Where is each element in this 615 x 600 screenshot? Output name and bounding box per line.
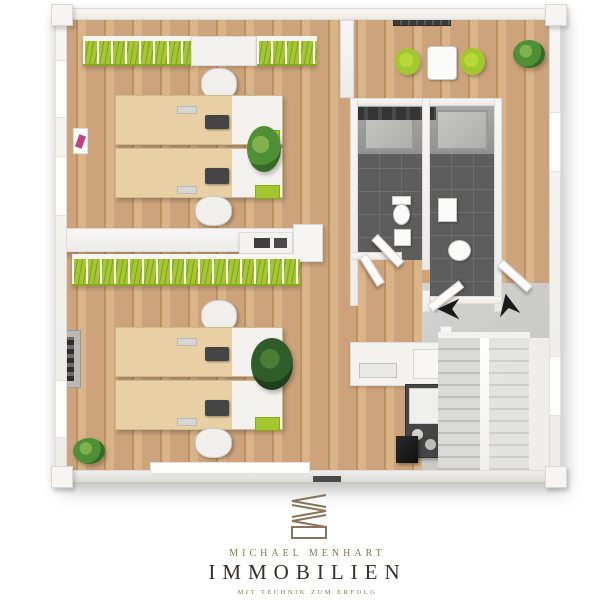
stair-side-wall (529, 338, 549, 470)
green-chair (395, 48, 420, 75)
printer-cabinet (239, 232, 293, 254)
bathroom-left-tile-floor (358, 154, 422, 260)
drawer-pedestal-green (255, 417, 280, 431)
potted-plant (247, 126, 281, 172)
cooktop-burner (425, 439, 436, 450)
kitchen-sink (359, 363, 397, 378)
window (55, 60, 67, 118)
potted-plant (513, 40, 545, 68)
outer-wall-top (55, 8, 561, 20)
toilet (448, 240, 471, 261)
window (549, 112, 561, 172)
monitor (205, 168, 229, 184)
corner-pillar (545, 466, 567, 488)
threshold-dark (313, 476, 341, 482)
keyboard (177, 186, 197, 194)
wall-art-pink (75, 134, 86, 149)
appliance-front (409, 388, 439, 424)
window (55, 380, 67, 438)
wall (350, 98, 358, 306)
corner-pillar (51, 466, 73, 488)
stair-flight-right (489, 338, 529, 470)
keyboard (177, 418, 197, 426)
stair-void (480, 338, 489, 470)
potted-plant-dark (251, 338, 293, 390)
window (55, 156, 67, 216)
brand-block: MICHAEL MENHART IMMOBILIEN MIT TECHNIK Z… (0, 488, 615, 596)
monitor (205, 400, 229, 416)
drawer-pedestal-green (255, 185, 280, 199)
brand-name: MICHAEL MENHART (229, 548, 386, 559)
keyboard (177, 106, 197, 114)
corner-pillar (545, 4, 567, 26)
office-device (274, 238, 287, 248)
bathroom-right-tile-floor (430, 154, 494, 304)
window (549, 356, 561, 416)
bistro-table (427, 46, 457, 80)
toilet (393, 204, 410, 225)
stair-direction-arrow-icon (493, 290, 524, 321)
shelf-unit-green-top-left (83, 36, 191, 66)
monitor (205, 115, 229, 129)
sink (438, 198, 457, 222)
printer (254, 238, 270, 248)
corner-pillar (51, 4, 73, 26)
window-sill-bottom (150, 462, 310, 474)
brand-tagline: MIT TECHNIK ZUM ERFOLG (238, 589, 378, 596)
cabinet-white-top (191, 36, 257, 66)
brand-division: IMMOBILIEN (208, 560, 406, 585)
trash-bin (396, 436, 418, 463)
wall (494, 98, 502, 312)
green-chair (460, 48, 485, 75)
wall-art-frame (73, 128, 88, 154)
wall-stub-top (340, 20, 354, 98)
floorplan-rendering: MICHAEL MENHART IMMOBILIEN MIT TECHNIK Z… (0, 0, 615, 600)
brand-logo-icon (276, 488, 340, 544)
office-chair (195, 428, 232, 458)
wall (422, 98, 430, 270)
monitor (205, 347, 229, 361)
wall (422, 290, 430, 312)
floor-plan (55, 8, 561, 482)
keyboard (177, 338, 197, 346)
stair-flight-left (438, 338, 480, 470)
potted-plant (73, 438, 105, 464)
office-chair (195, 196, 232, 226)
kitchen-counter (350, 342, 450, 386)
shelf-unit-green-middle (72, 254, 300, 286)
sink (394, 229, 411, 246)
bathroom-mirror (436, 110, 488, 150)
shelf-unit-green-top-right (257, 36, 317, 66)
